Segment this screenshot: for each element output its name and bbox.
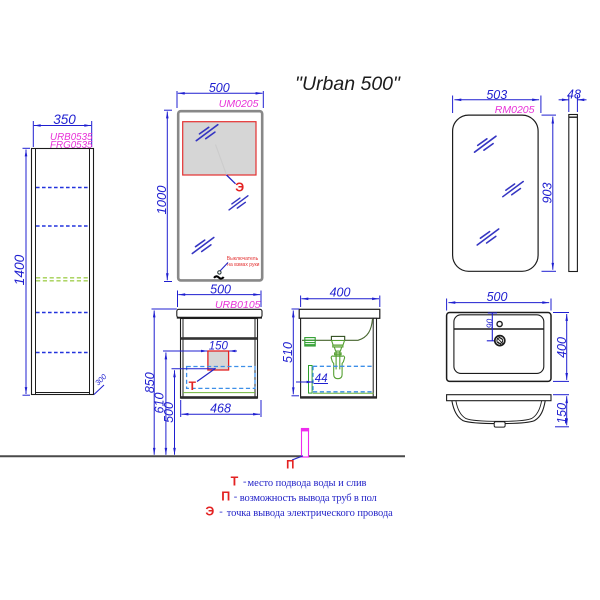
svg-text:1000: 1000 [154,185,169,215]
svg-text:500: 500 [162,402,176,423]
svg-text:Т: Т [231,475,239,489]
svg-text:UM0205: UM0205 [219,98,259,110]
svg-text:Т: Т [189,379,197,393]
svg-text:Э: Э [235,181,244,195]
svg-text:503: 503 [486,88,507,102]
svg-text:350: 350 [53,112,76,127]
svg-text:возможность вывода труб в пол: возможность вывода труб в пол [240,493,377,504]
svg-text:500: 500 [487,290,508,304]
svg-text:510: 510 [281,342,295,363]
svg-text:850: 850 [143,372,157,393]
svg-text:на взмах руки: на взмах руки [227,262,259,268]
svg-text:468: 468 [210,402,231,416]
svg-text:-: - [243,477,247,488]
svg-text:150: 150 [555,403,569,424]
svg-text:П: П [221,490,230,504]
svg-text:место подвода воды и слив: место подвода воды и слив [248,478,367,489]
svg-text:48: 48 [567,88,581,102]
svg-text:400: 400 [555,337,569,358]
svg-text:-: - [219,507,223,518]
svg-text:-: - [234,492,238,503]
svg-text:RM0205: RM0205 [495,104,535,116]
svg-text:400: 400 [330,286,351,300]
svg-text:точка вывода электрического пр: точка вывода электрического провода [227,508,393,519]
svg-text:"Urban 500": "Urban 500" [295,73,401,95]
svg-text:500: 500 [210,283,231,297]
svg-text:Э: Э [205,505,214,519]
svg-text:П: П [286,460,294,472]
svg-text:500: 500 [209,81,230,95]
svg-text:903: 903 [540,183,554,204]
svg-text:1400: 1400 [12,254,27,285]
svg-text:90: 90 [485,319,495,329]
